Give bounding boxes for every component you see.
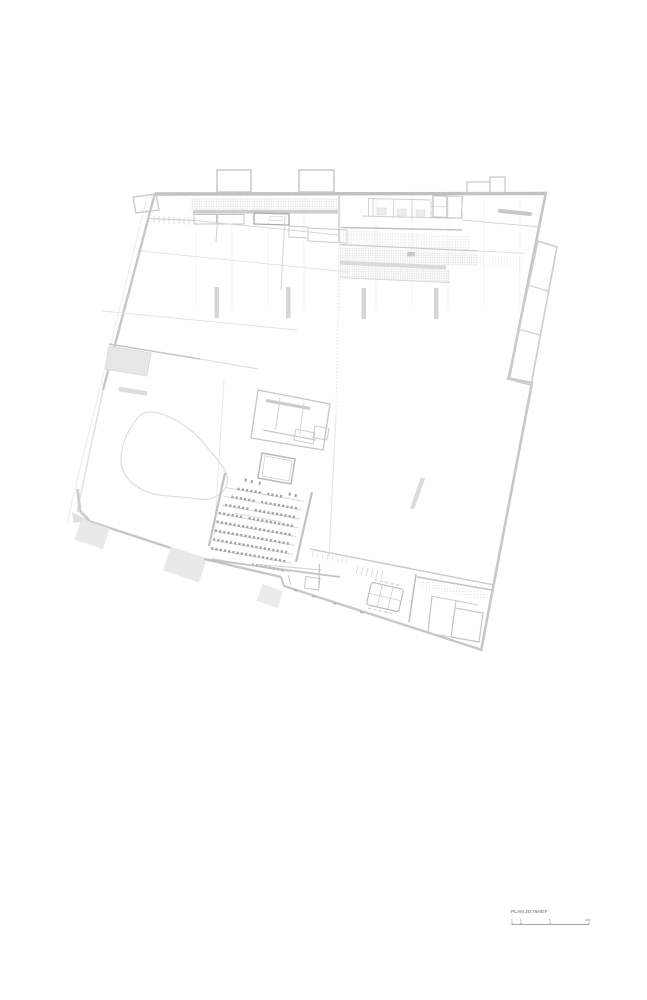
- svg-text:PLAN 20.75NGF: PLAN 20.75NGF: [511, 909, 548, 915]
- svg-text:10M: 10M: [585, 918, 591, 922]
